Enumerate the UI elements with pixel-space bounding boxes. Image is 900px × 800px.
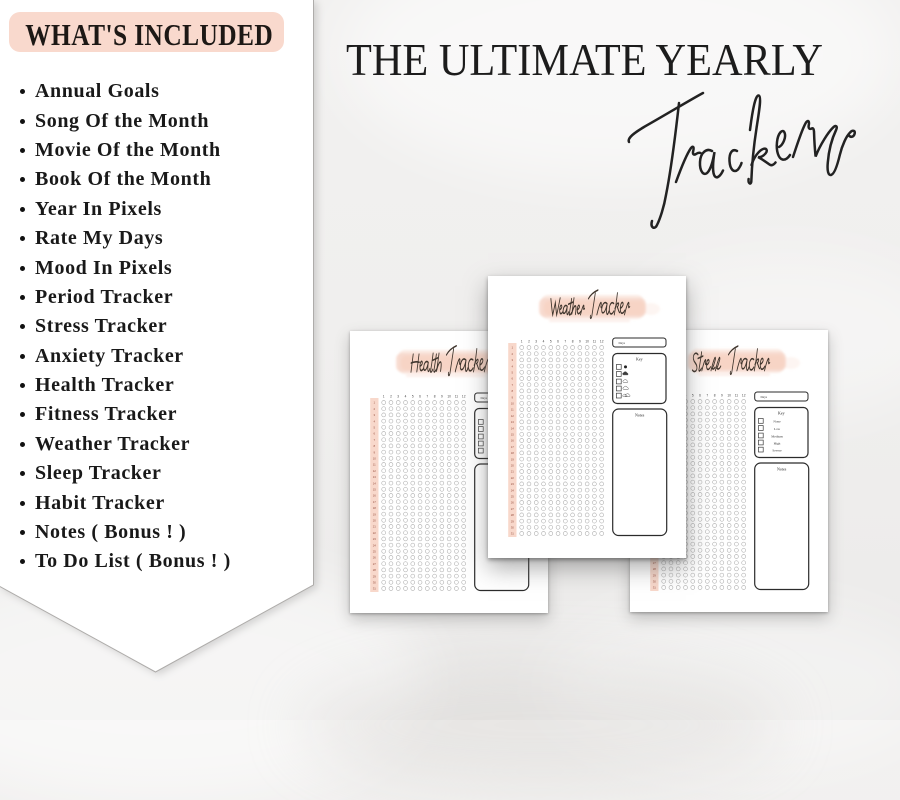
svg-text:23: 23: [511, 482, 515, 486]
svg-text:19: 19: [511, 457, 515, 461]
svg-text:10: 10: [373, 456, 377, 460]
svg-text:30: 30: [653, 579, 657, 583]
svg-text:Days: Days: [481, 396, 488, 400]
svg-text:11: 11: [593, 339, 597, 343]
svg-text:3: 3: [397, 394, 399, 398]
svg-text:5: 5: [550, 339, 552, 343]
svg-text:27: 27: [653, 561, 657, 565]
svg-text:29: 29: [511, 519, 515, 523]
svg-text:6: 6: [557, 339, 559, 343]
svg-text:22: 22: [373, 531, 377, 535]
svg-text:31: 31: [653, 586, 657, 590]
svg-text:8: 8: [434, 394, 436, 398]
svg-text:28: 28: [653, 567, 657, 571]
svg-text:23: 23: [373, 537, 377, 541]
svg-text:9: 9: [721, 393, 723, 397]
svg-text:4: 4: [543, 339, 545, 343]
svg-text:18: 18: [511, 451, 515, 455]
svg-text:11: 11: [455, 394, 459, 398]
svg-text:16: 16: [373, 494, 377, 498]
svg-text:20: 20: [373, 518, 377, 522]
svg-text:Notes: Notes: [635, 413, 645, 418]
svg-text:24: 24: [511, 488, 515, 492]
svg-text:9: 9: [579, 339, 581, 343]
svg-text:21: 21: [373, 525, 377, 529]
svg-text:29: 29: [373, 574, 377, 578]
svg-text:26: 26: [373, 556, 377, 560]
svg-text:15: 15: [511, 432, 515, 436]
svg-text:19: 19: [373, 512, 377, 516]
svg-text:10: 10: [585, 339, 589, 343]
svg-text:31: 31: [511, 532, 515, 536]
svg-text:15: 15: [373, 487, 377, 491]
svg-text:Medium: Medium: [771, 434, 783, 438]
svg-text:3: 3: [535, 339, 537, 343]
svg-text:11: 11: [735, 393, 739, 397]
svg-text:6: 6: [419, 394, 421, 398]
svg-text:26: 26: [511, 501, 515, 505]
svg-text:28: 28: [373, 568, 377, 572]
svg-text:14: 14: [373, 481, 377, 485]
svg-text:30: 30: [373, 580, 377, 584]
svg-text:Key: Key: [778, 411, 785, 416]
svg-text:21: 21: [511, 470, 515, 474]
svg-text:Severe: Severe: [772, 448, 782, 452]
svg-text:14: 14: [511, 426, 515, 430]
svg-text:16: 16: [511, 439, 515, 443]
svg-text:Low: Low: [774, 427, 781, 431]
svg-text:28: 28: [511, 513, 515, 517]
svg-text:2: 2: [528, 339, 530, 343]
svg-text:22: 22: [511, 476, 515, 480]
svg-text:None: None: [773, 420, 781, 424]
svg-text:7: 7: [564, 339, 566, 343]
svg-text:10: 10: [511, 401, 515, 405]
svg-text:Days: Days: [761, 395, 768, 399]
svg-text:9: 9: [441, 394, 443, 398]
svg-text:27: 27: [373, 562, 377, 566]
svg-text:30: 30: [511, 525, 515, 529]
svg-text:17: 17: [373, 500, 377, 504]
svg-text:12: 12: [373, 469, 377, 473]
svg-text:10: 10: [447, 394, 451, 398]
svg-text:4: 4: [405, 394, 407, 398]
svg-text:8: 8: [714, 393, 716, 397]
svg-text:High: High: [774, 441, 781, 445]
svg-text:12: 12: [600, 339, 604, 343]
svg-text:17: 17: [511, 445, 515, 449]
svg-text:2: 2: [390, 394, 392, 398]
svg-text:29: 29: [653, 573, 657, 577]
svg-text:Notes: Notes: [777, 467, 787, 472]
svg-text:6: 6: [699, 393, 701, 397]
svg-text:12: 12: [511, 414, 515, 418]
svg-text:11: 11: [373, 463, 376, 467]
svg-text:Days: Days: [619, 341, 626, 345]
svg-text:12: 12: [462, 394, 466, 398]
svg-text:13: 13: [511, 420, 515, 424]
svg-text:8: 8: [572, 339, 574, 343]
svg-text:25: 25: [511, 494, 515, 498]
svg-text:5: 5: [692, 393, 694, 397]
svg-text:18: 18: [373, 506, 377, 510]
svg-text:1: 1: [521, 339, 523, 343]
svg-text:13: 13: [373, 475, 377, 479]
svg-text:1: 1: [383, 394, 385, 398]
svg-text:5: 5: [412, 394, 414, 398]
svg-text:31: 31: [373, 587, 377, 591]
svg-text:24: 24: [373, 543, 377, 547]
svg-text:12: 12: [742, 393, 746, 397]
svg-text:20: 20: [511, 463, 515, 467]
svg-text:10: 10: [727, 393, 731, 397]
svg-text:11: 11: [511, 408, 514, 412]
svg-text:25: 25: [373, 549, 377, 553]
svg-text:7: 7: [426, 394, 428, 398]
svg-text:27: 27: [511, 507, 515, 511]
svg-text:7: 7: [706, 393, 708, 397]
svg-text:Key: Key: [636, 357, 643, 362]
